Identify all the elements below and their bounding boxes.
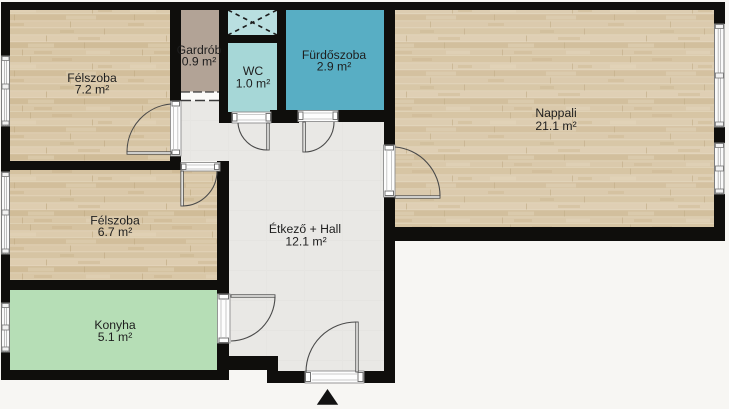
svg-text:21.1 m²: 21.1 m² xyxy=(535,119,576,133)
svg-text:5.1 m²: 5.1 m² xyxy=(98,330,133,344)
svg-text:Nappali: Nappali xyxy=(535,106,576,120)
svg-text:6.7 m²: 6.7 m² xyxy=(98,225,133,239)
svg-text:2.9 m²: 2.9 m² xyxy=(317,60,352,74)
svg-text:12.1 m²: 12.1 m² xyxy=(285,235,326,249)
svg-text:7.2 m²: 7.2 m² xyxy=(75,83,110,97)
svg-text:0.9 m²: 0.9 m² xyxy=(182,55,217,69)
svg-text:1.0 m²: 1.0 m² xyxy=(236,77,271,91)
